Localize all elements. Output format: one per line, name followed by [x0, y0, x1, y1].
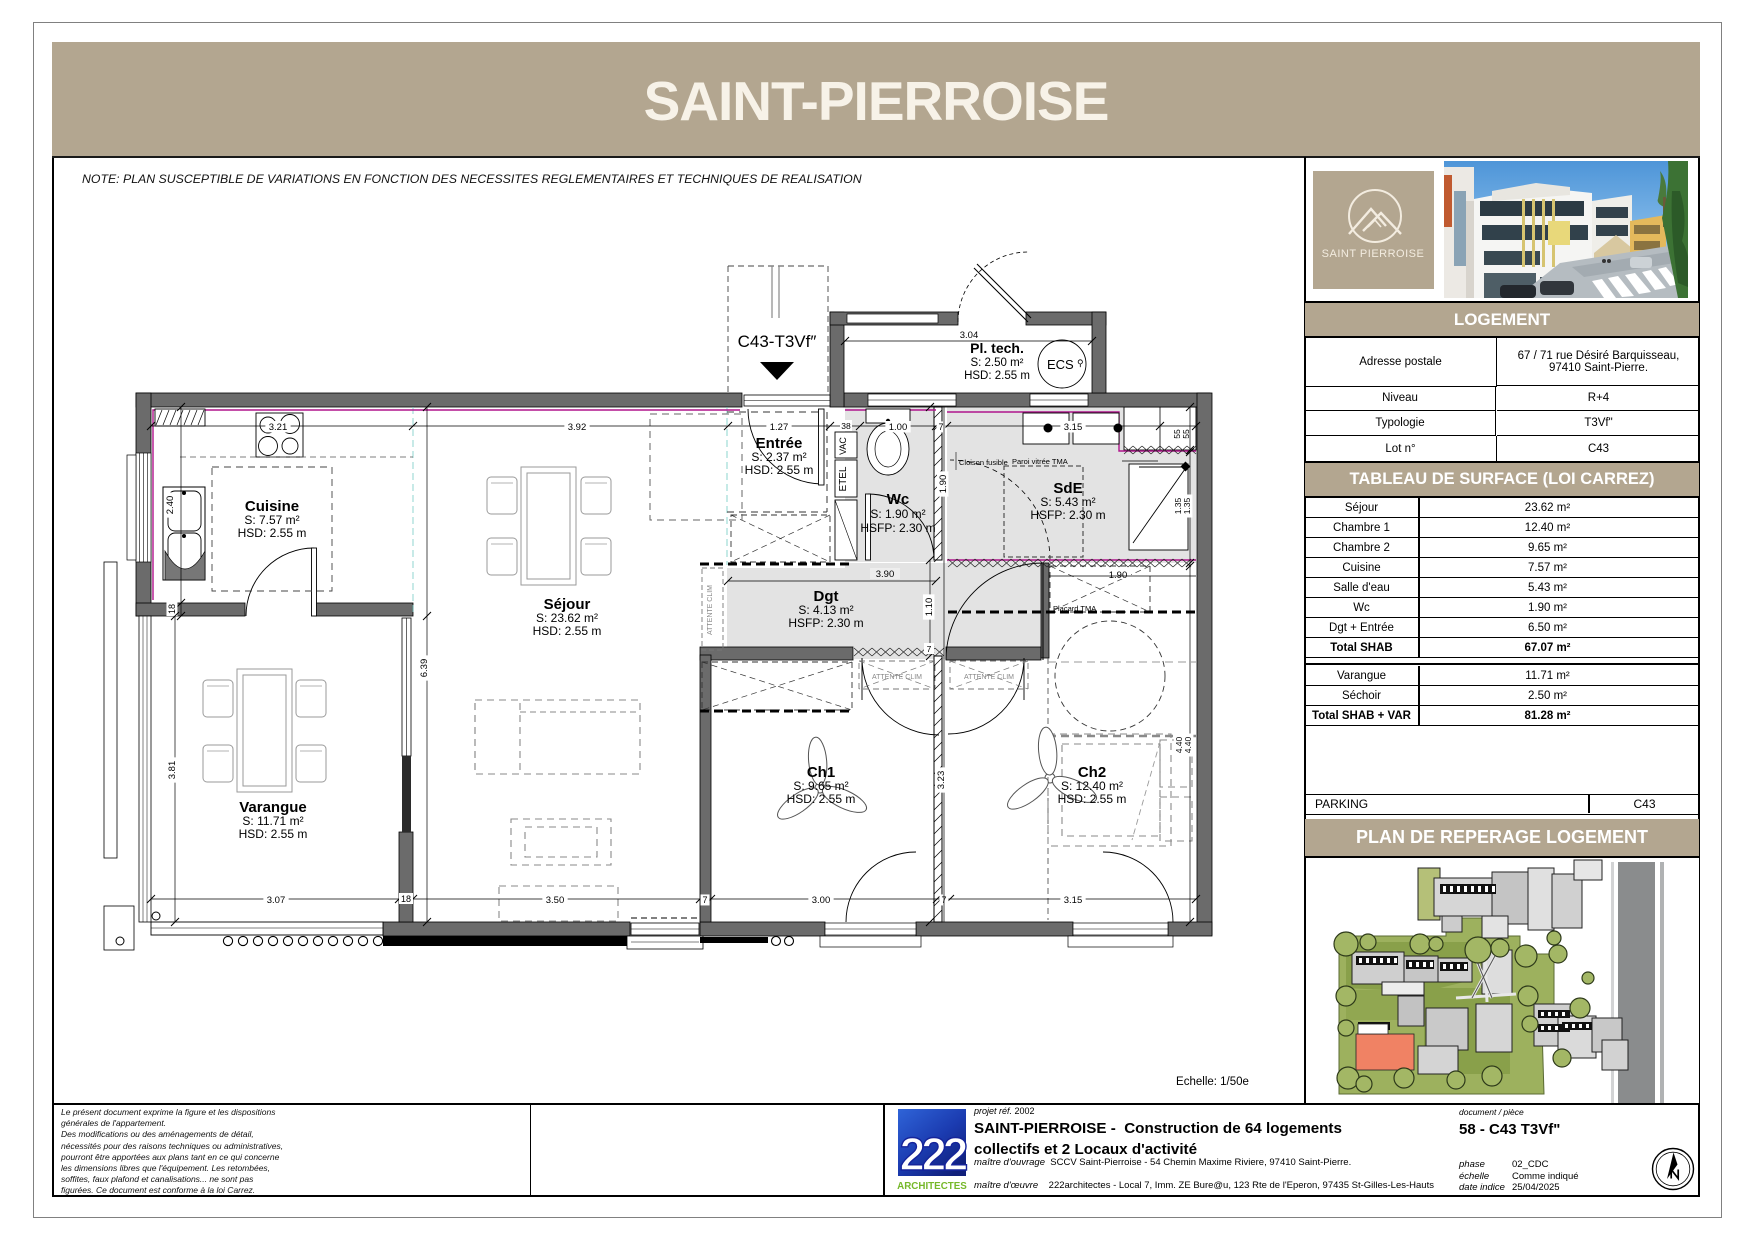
svg-text:6.39: 6.39: [419, 659, 430, 678]
svg-text:38: 38: [841, 421, 851, 431]
svg-text:3.21: 3.21: [269, 422, 288, 433]
svg-text:1.00: 1.00: [889, 422, 908, 433]
svg-text:3.00: 3.00: [812, 895, 831, 906]
svg-text:3.07: 3.07: [267, 895, 286, 906]
svg-text:7: 7: [927, 644, 932, 654]
svg-text:1.90: 1.90: [938, 475, 949, 494]
svg-text:7: 7: [938, 422, 943, 432]
svg-text:18: 18: [401, 894, 411, 904]
svg-text:1.35: 1.35: [1182, 497, 1192, 514]
svg-text:1.90: 1.90: [1109, 570, 1128, 581]
svg-text:3.90: 3.90: [876, 569, 895, 580]
svg-text:3.50: 3.50: [546, 895, 565, 906]
svg-text:3.04: 3.04: [960, 330, 979, 341]
svg-text:7: 7: [702, 895, 707, 905]
svg-text:55: 55: [1181, 429, 1191, 439]
svg-text:3.81: 3.81: [167, 761, 178, 780]
svg-text:3.92: 3.92: [568, 422, 587, 433]
svg-text:3.23: 3.23: [936, 771, 947, 790]
svg-text:2.40: 2.40: [165, 496, 176, 515]
svg-text:1.27: 1.27: [770, 422, 789, 433]
svg-text:1.10: 1.10: [924, 598, 935, 617]
svg-text:3.15: 3.15: [1064, 422, 1083, 433]
svg-text:3.15: 3.15: [1064, 895, 1083, 906]
svg-text:4.40: 4.40: [1183, 736, 1193, 753]
svg-text:18: 18: [167, 604, 177, 614]
